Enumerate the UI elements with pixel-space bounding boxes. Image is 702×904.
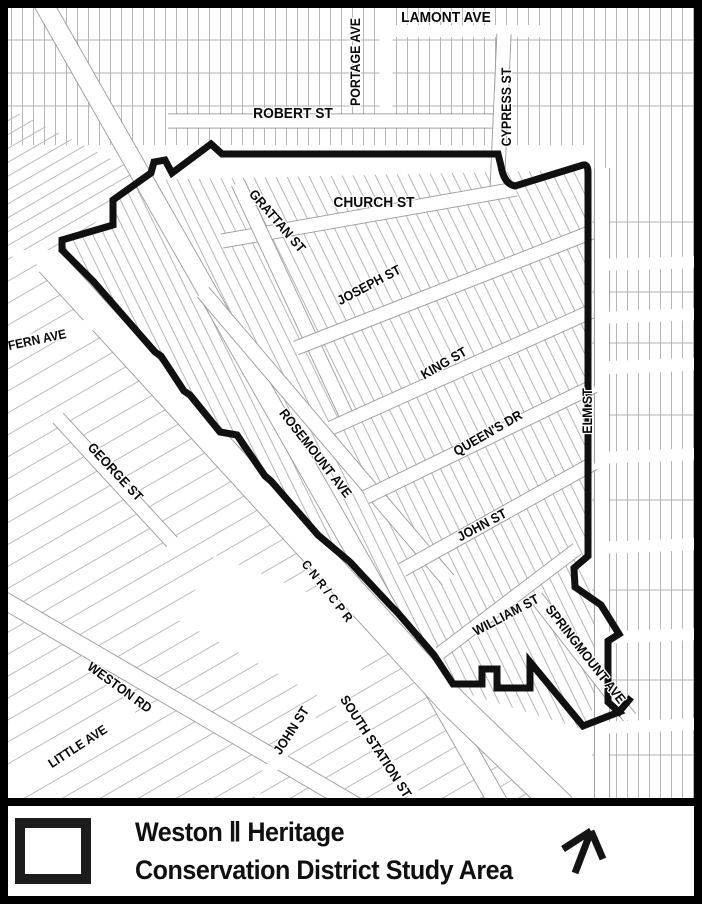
legend-title: Weston Ⅱ Heritage Conservation District … <box>135 813 513 889</box>
street-label-church-st: CHURCH ST <box>333 195 414 212</box>
street-label-cypress-st: CYPRESS ST <box>499 68 515 147</box>
map-canvas: LAMONT AVEPORTAGE AVEROBERT STCYPRESS ST… <box>0 0 702 806</box>
street-label-lamont-ave: LAMONT AVE <box>401 10 491 27</box>
street-line <box>596 364 700 368</box>
street-line <box>596 544 700 548</box>
street-label-elm-st: ELM ST <box>580 388 596 434</box>
street-line <box>596 262 700 265</box>
north-arrow-icon <box>558 823 610 879</box>
street-line <box>596 724 700 728</box>
street-line <box>596 454 700 458</box>
legend: Weston Ⅱ Heritage Conservation District … <box>0 806 702 904</box>
street-map: LAMONT AVEPORTAGE AVEROBERT STCYPRESS ST… <box>0 0 702 806</box>
street-line <box>596 314 700 318</box>
legend-title-line1: Weston Ⅱ Heritage <box>135 813 513 851</box>
street-label-portage-ave: PORTAGE AVE <box>348 18 364 106</box>
street-label-robert-st: ROBERT ST <box>253 106 333 123</box>
study-area-boundary-swatch <box>15 818 91 884</box>
legend-title-line2: Conservation District Study Area <box>135 851 513 889</box>
map-page: LAMONT AVEPORTAGE AVEROBERT STCYPRESS ST… <box>0 0 702 904</box>
